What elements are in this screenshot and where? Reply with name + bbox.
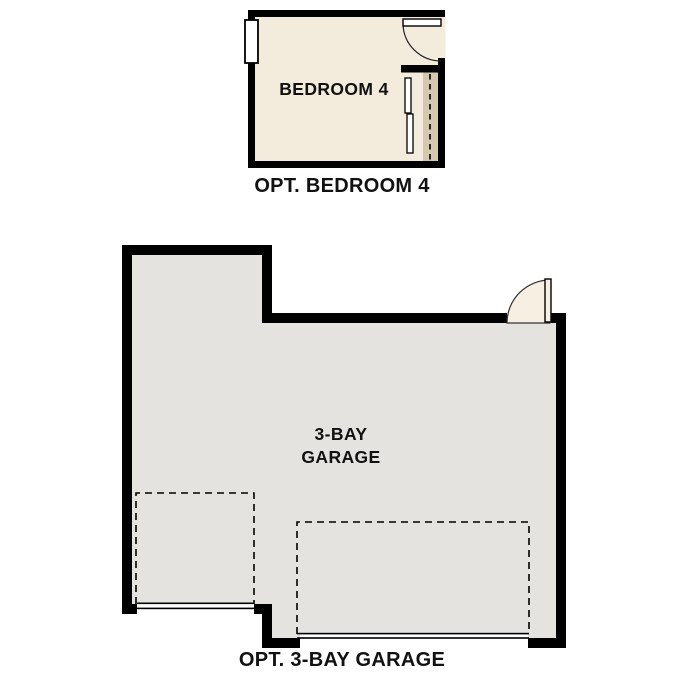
garage-caption: OPT. 3-BAY GARAGE bbox=[212, 649, 472, 672]
garage-entry-door-leaf bbox=[545, 279, 551, 322]
garage-room-label-line1: 3-BAY bbox=[241, 423, 441, 446]
garage-entry-door-swing bbox=[507, 280, 550, 323]
bedroom-room-label: BEDROOM 4 bbox=[234, 79, 434, 100]
garage-room-label-line2: GARAGE bbox=[241, 446, 441, 469]
garage-room-label: 3-BAY GARAGE bbox=[241, 423, 441, 469]
closet-door-slab-2 bbox=[407, 114, 413, 153]
garage-door-opening-right bbox=[300, 634, 528, 649]
floorplan-drawing bbox=[0, 0, 687, 687]
garage-door-line bbox=[137, 608, 254, 610]
closet-wall bbox=[401, 65, 445, 73]
bedroom-window bbox=[245, 20, 258, 63]
garage-door-line bbox=[297, 633, 529, 635]
garage-door-line bbox=[137, 603, 254, 605]
bedroom-door-leaf bbox=[403, 19, 441, 26]
floorplan-page: BEDROOM 4 OPT. BEDROOM 4 3-BAY GARAGE OP… bbox=[0, 0, 687, 687]
bedroom-caption: OPT. BEDROOM 4 bbox=[222, 175, 462, 198]
garage-door-line bbox=[297, 637, 529, 639]
